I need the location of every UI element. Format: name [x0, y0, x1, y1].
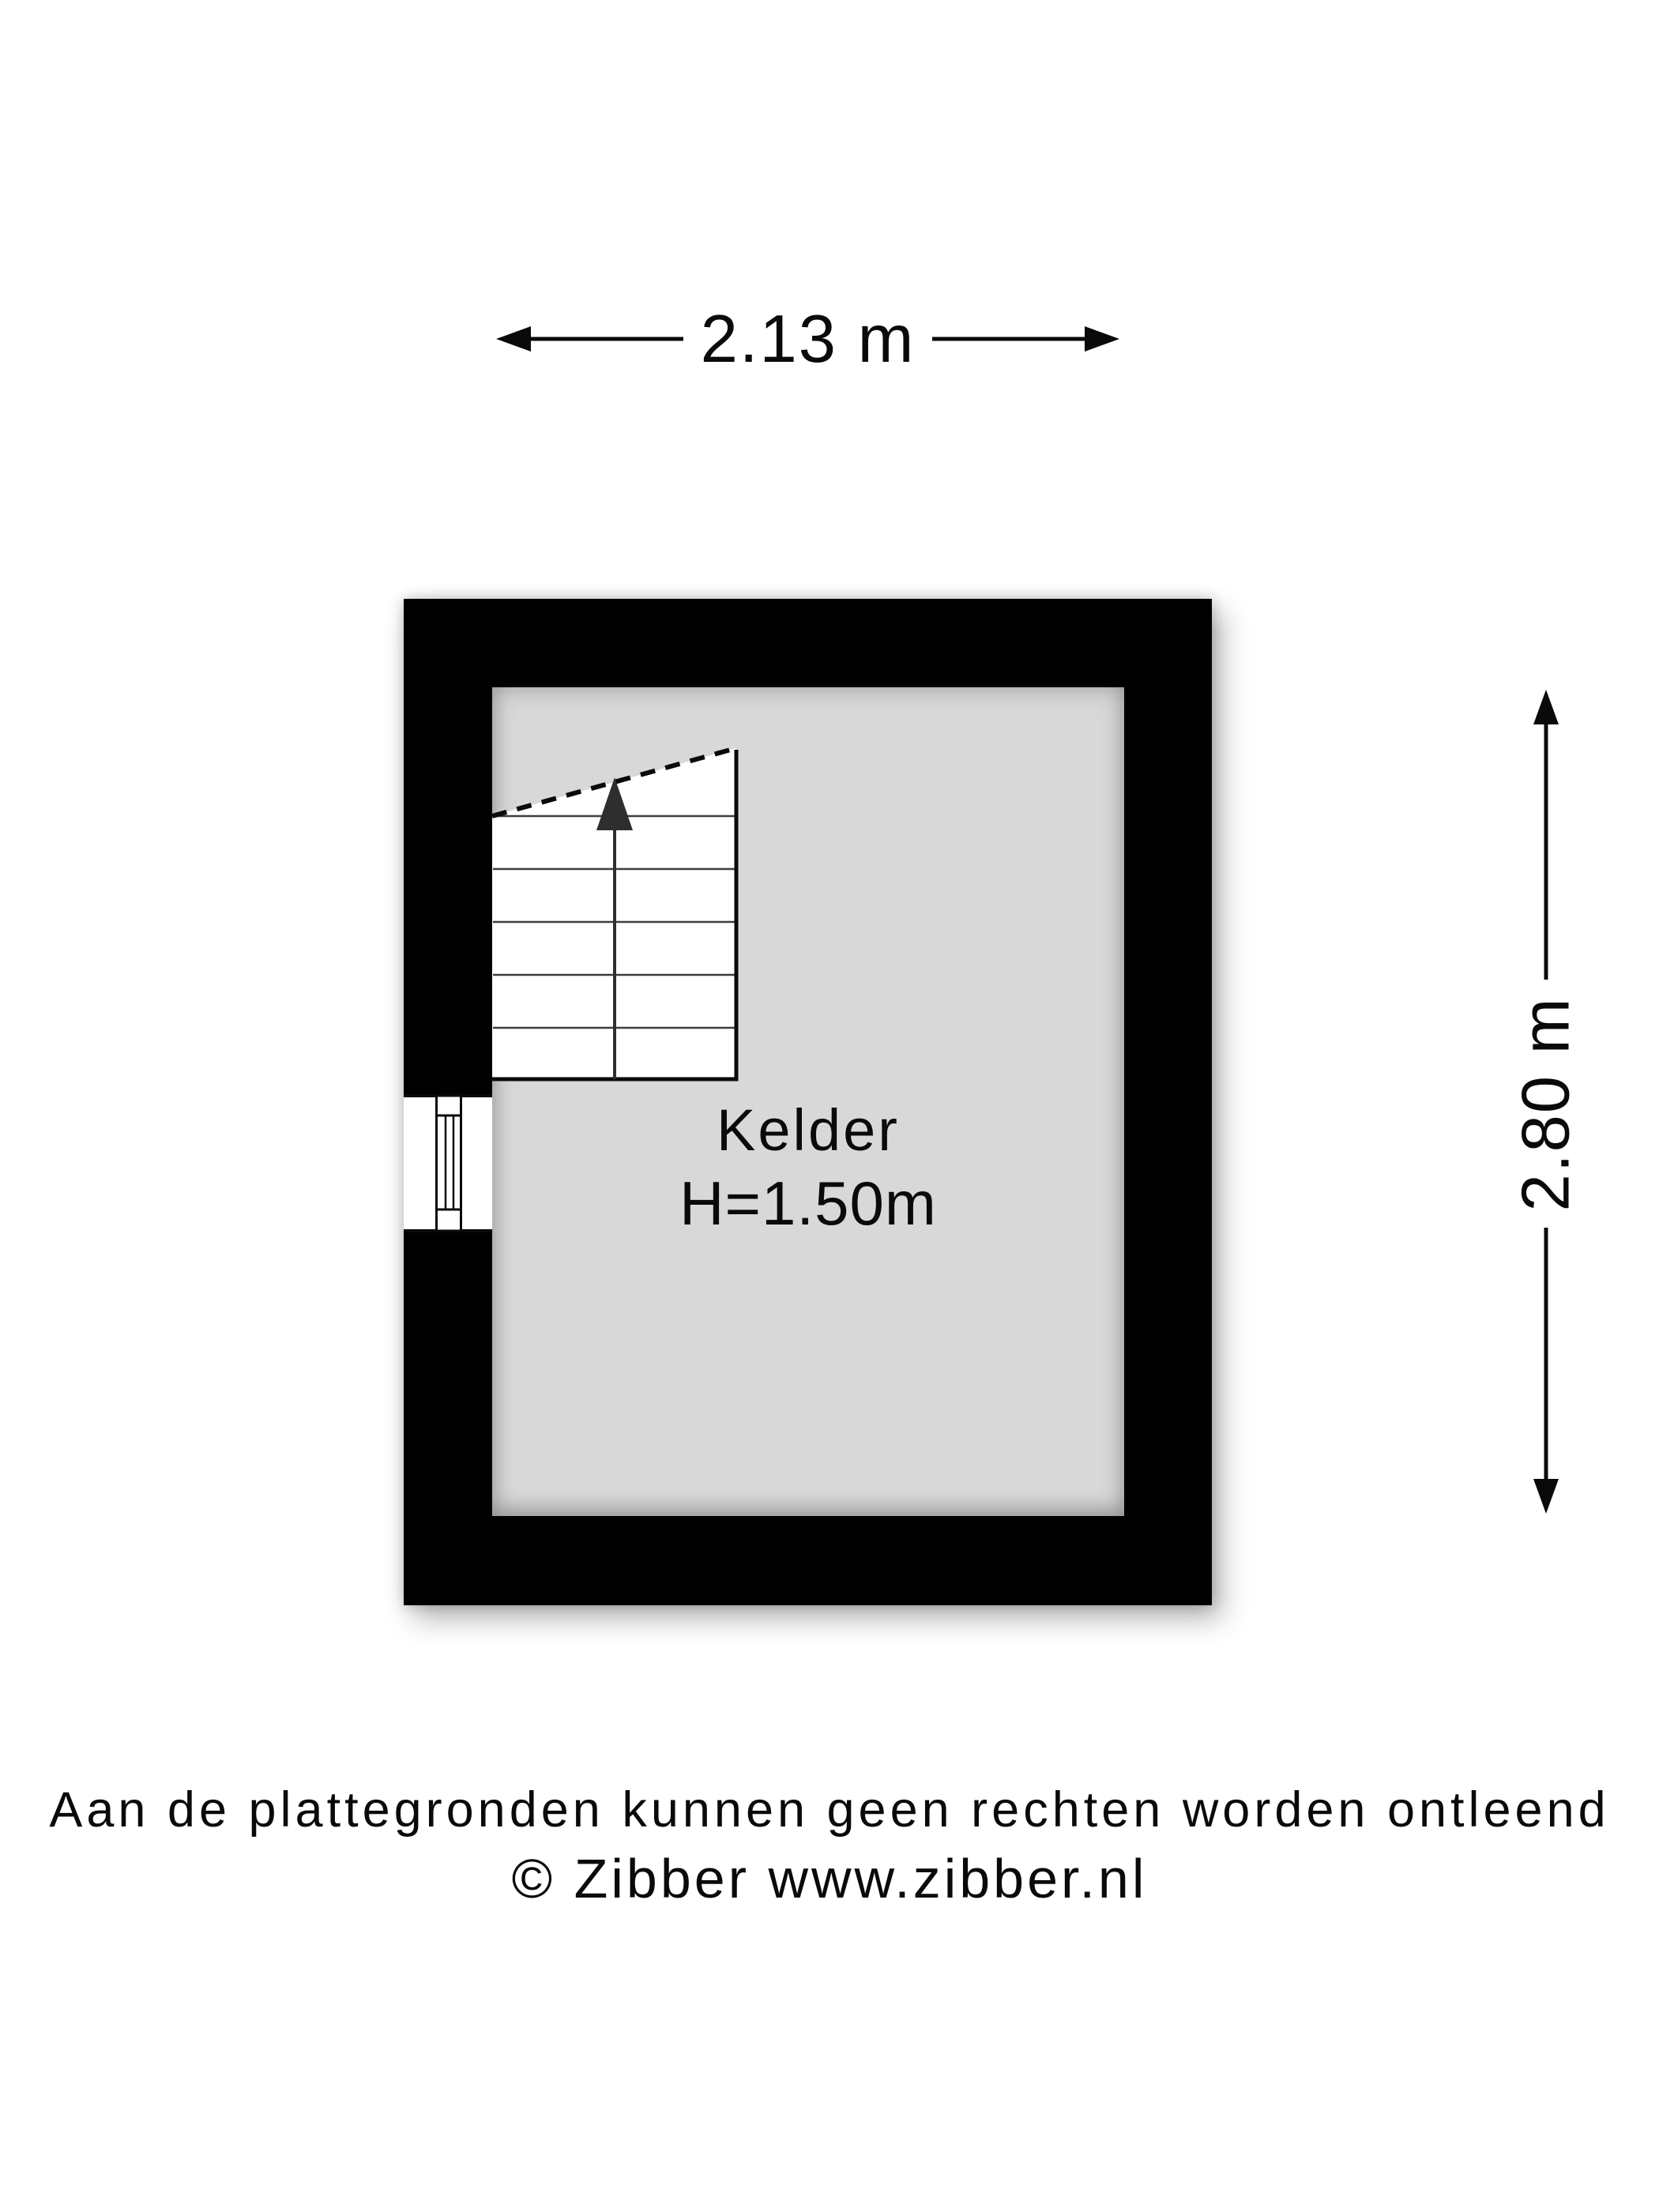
room-height-label: H=1.50m	[492, 1172, 1124, 1234]
copyright-text: © Zibber www.zibber.nl	[0, 1851, 1659, 1906]
floorplan-page: 2.13 m	[0, 0, 1659, 2212]
cellar-window	[404, 1094, 492, 1232]
staircase	[492, 748, 736, 1081]
height-dimension-label: 2.80 m	[1513, 986, 1580, 1223]
disclaimer-text: Aan de plattegronden kunnen geen rechten…	[0, 1785, 1659, 1835]
room-name-label: Kelder	[492, 1101, 1124, 1160]
width-dimension: 2.13 m	[494, 306, 1122, 377]
width-dimension-label: 2.13 m	[494, 306, 1122, 373]
height-dimension: 2.80 m	[1522, 687, 1570, 1516]
